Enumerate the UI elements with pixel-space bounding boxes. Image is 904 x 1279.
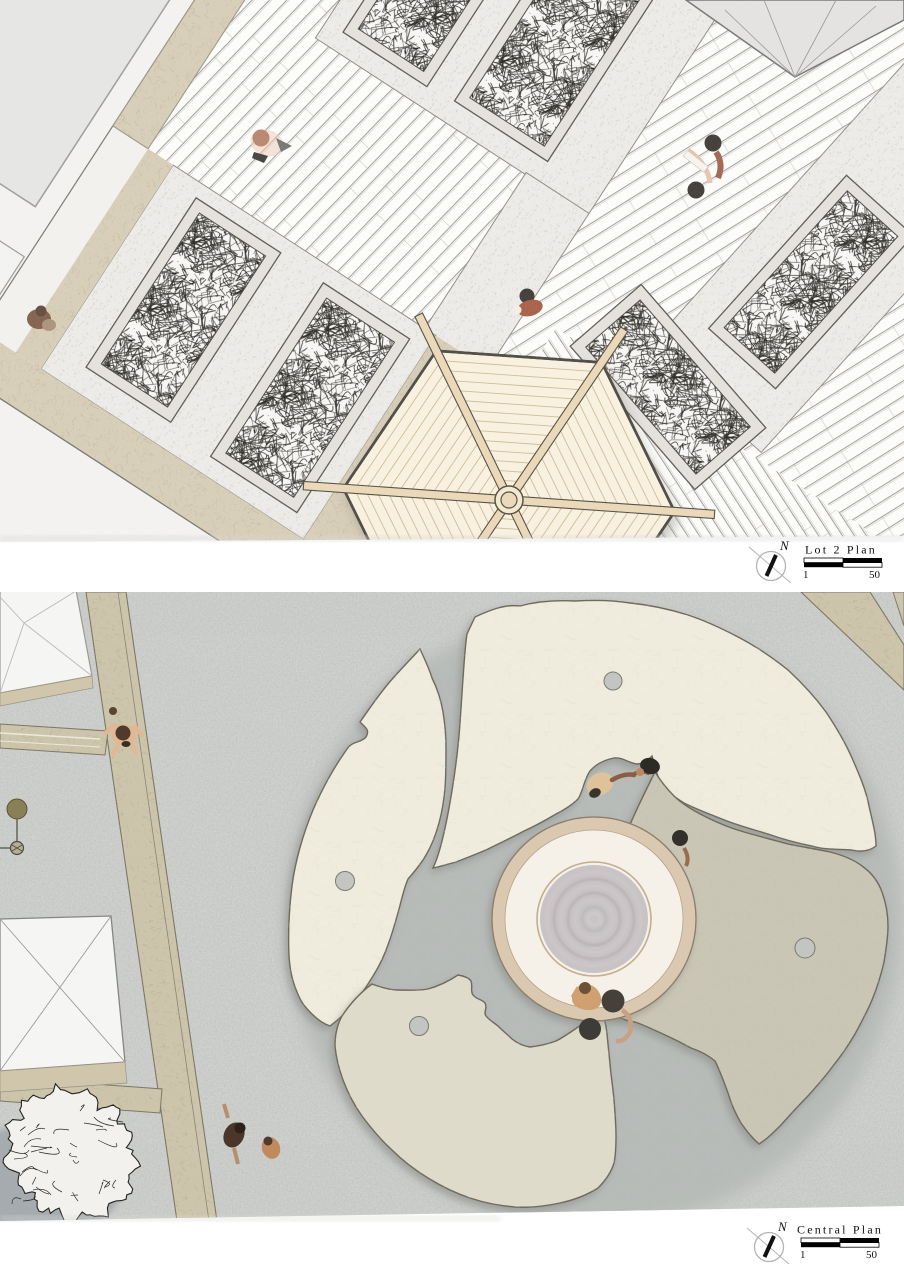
svg-text:50: 50 xyxy=(866,1249,878,1261)
svg-text:1: 1 xyxy=(803,569,809,581)
svg-text:Central Plan: Central Plan xyxy=(797,1223,883,1237)
svg-text:N: N xyxy=(779,538,790,553)
svg-text:50: 50 xyxy=(869,569,881,581)
svg-text:N: N xyxy=(777,1219,788,1234)
svg-text:1: 1 xyxy=(800,1249,806,1261)
svg-text:Lot 2 Plan: Lot 2 Plan xyxy=(805,543,877,557)
